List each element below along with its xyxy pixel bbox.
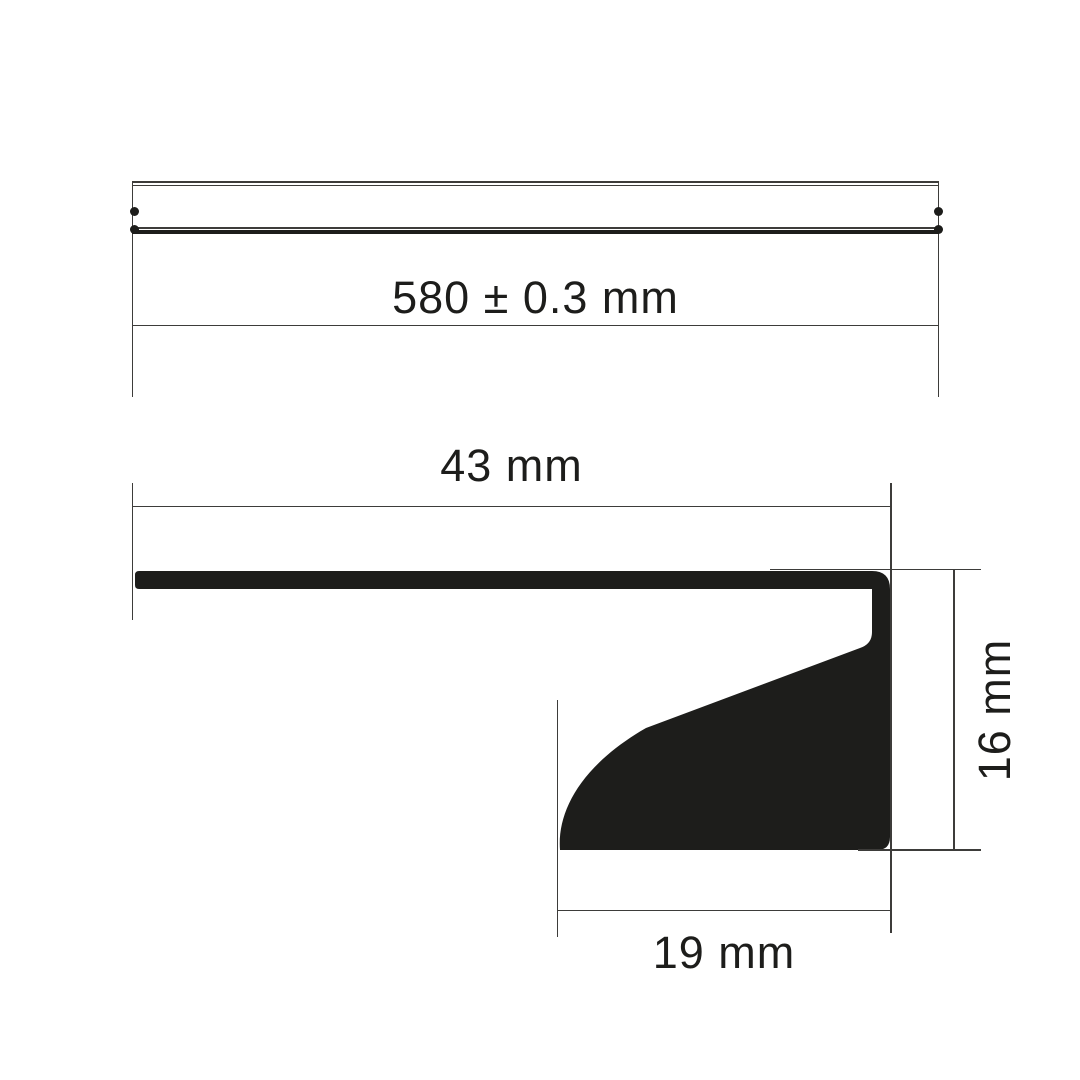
depth-dimension-label: 19 mm <box>557 927 891 979</box>
dimension-line-depth <box>557 910 891 912</box>
tick-line-height-top <box>770 569 981 571</box>
tick-line-height-bottom <box>858 849 981 851</box>
extension-line-depth-left <box>557 700 559 937</box>
dimension-line-height <box>953 569 955 850</box>
profile-cross-section-shape <box>0 0 1080 1080</box>
height-dimension-label: 16 mm <box>969 620 1021 800</box>
profile-cross-section-path <box>135 571 890 850</box>
technical-drawing: 580 ± 0.3 mm 43 mm 16 mm 19 mm <box>0 0 1080 1080</box>
